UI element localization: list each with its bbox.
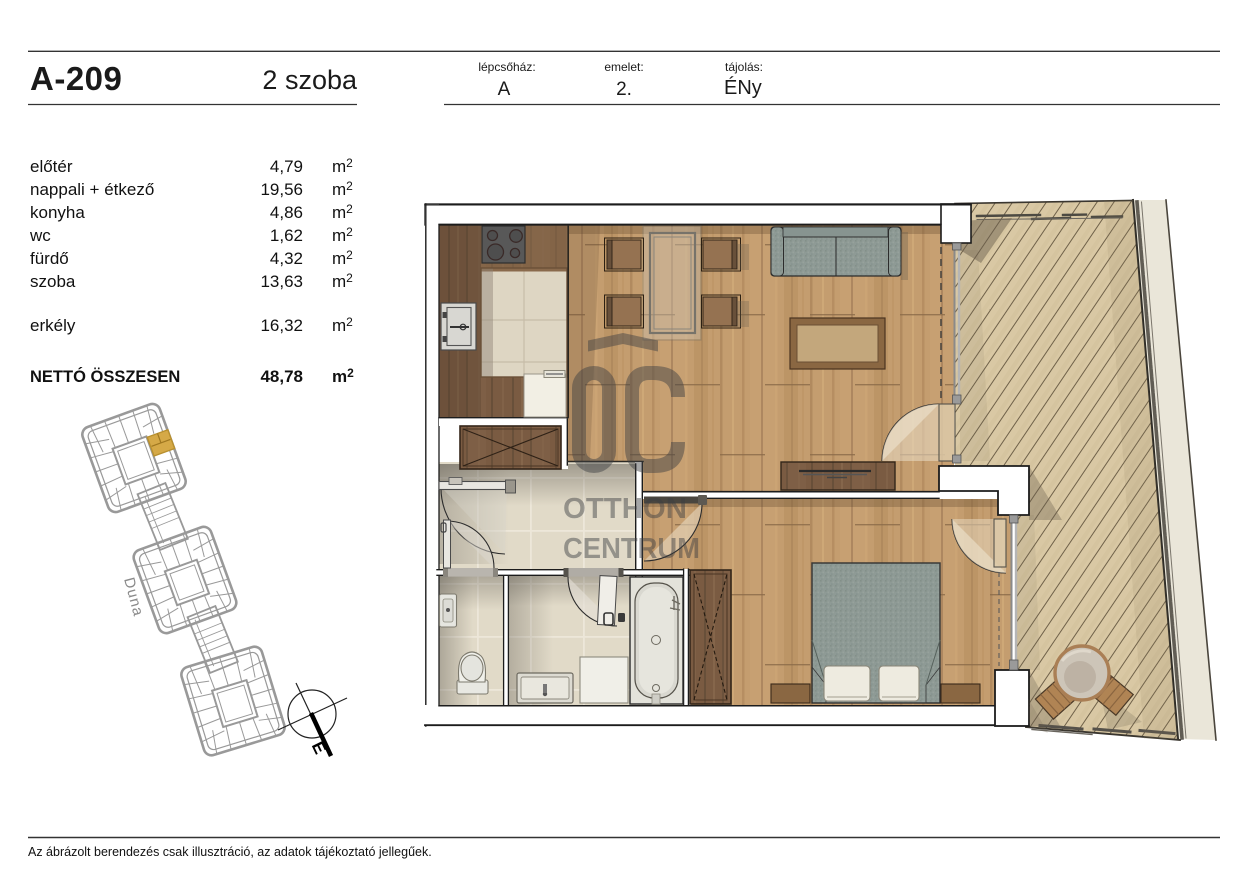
svg-text:emelet:: emelet: [604,60,643,74]
svg-text:szoba: szoba [30,272,76,291]
svg-text:CENTRUM: CENTRUM [563,533,700,565]
svg-text:Az ábrázolt berendezés csak il: Az ábrázolt berendezés csak illusztráció… [28,845,432,859]
svg-text:48,78: 48,78 [260,367,303,386]
svg-text:OTTHON: OTTHON [563,493,687,525]
svg-text:19,56: 19,56 [260,180,303,199]
svg-text:4,79: 4,79 [270,157,303,176]
svg-text:fürdő: fürdő [30,249,69,268]
svg-text:NETTÓ ÖSSZESEN: NETTÓ ÖSSZESEN [30,367,180,386]
svg-text:4,32: 4,32 [270,249,303,268]
svg-text:A-209: A-209 [30,60,122,97]
svg-text:1,62: 1,62 [270,226,303,245]
svg-text:tájolás:: tájolás: [725,60,763,74]
svg-text:ÉNy: ÉNy [724,76,762,99]
svg-text:wc: wc [29,226,51,245]
svg-text:4,86: 4,86 [270,203,303,222]
svg-text:A: A [498,79,511,100]
svg-text:erkély: erkély [30,316,76,335]
svg-text:előtér: előtér [30,157,73,176]
svg-text:lépcsőház:: lépcsőház: [478,60,535,74]
svg-text:13,63: 13,63 [260,272,303,291]
svg-text:2.: 2. [616,79,632,100]
svg-text:2 szoba: 2 szoba [262,65,358,95]
svg-text:16,32: 16,32 [260,316,303,335]
svg-text:nappali + étkező: nappali + étkező [30,180,154,199]
svg-text:konyha: konyha [30,203,85,222]
